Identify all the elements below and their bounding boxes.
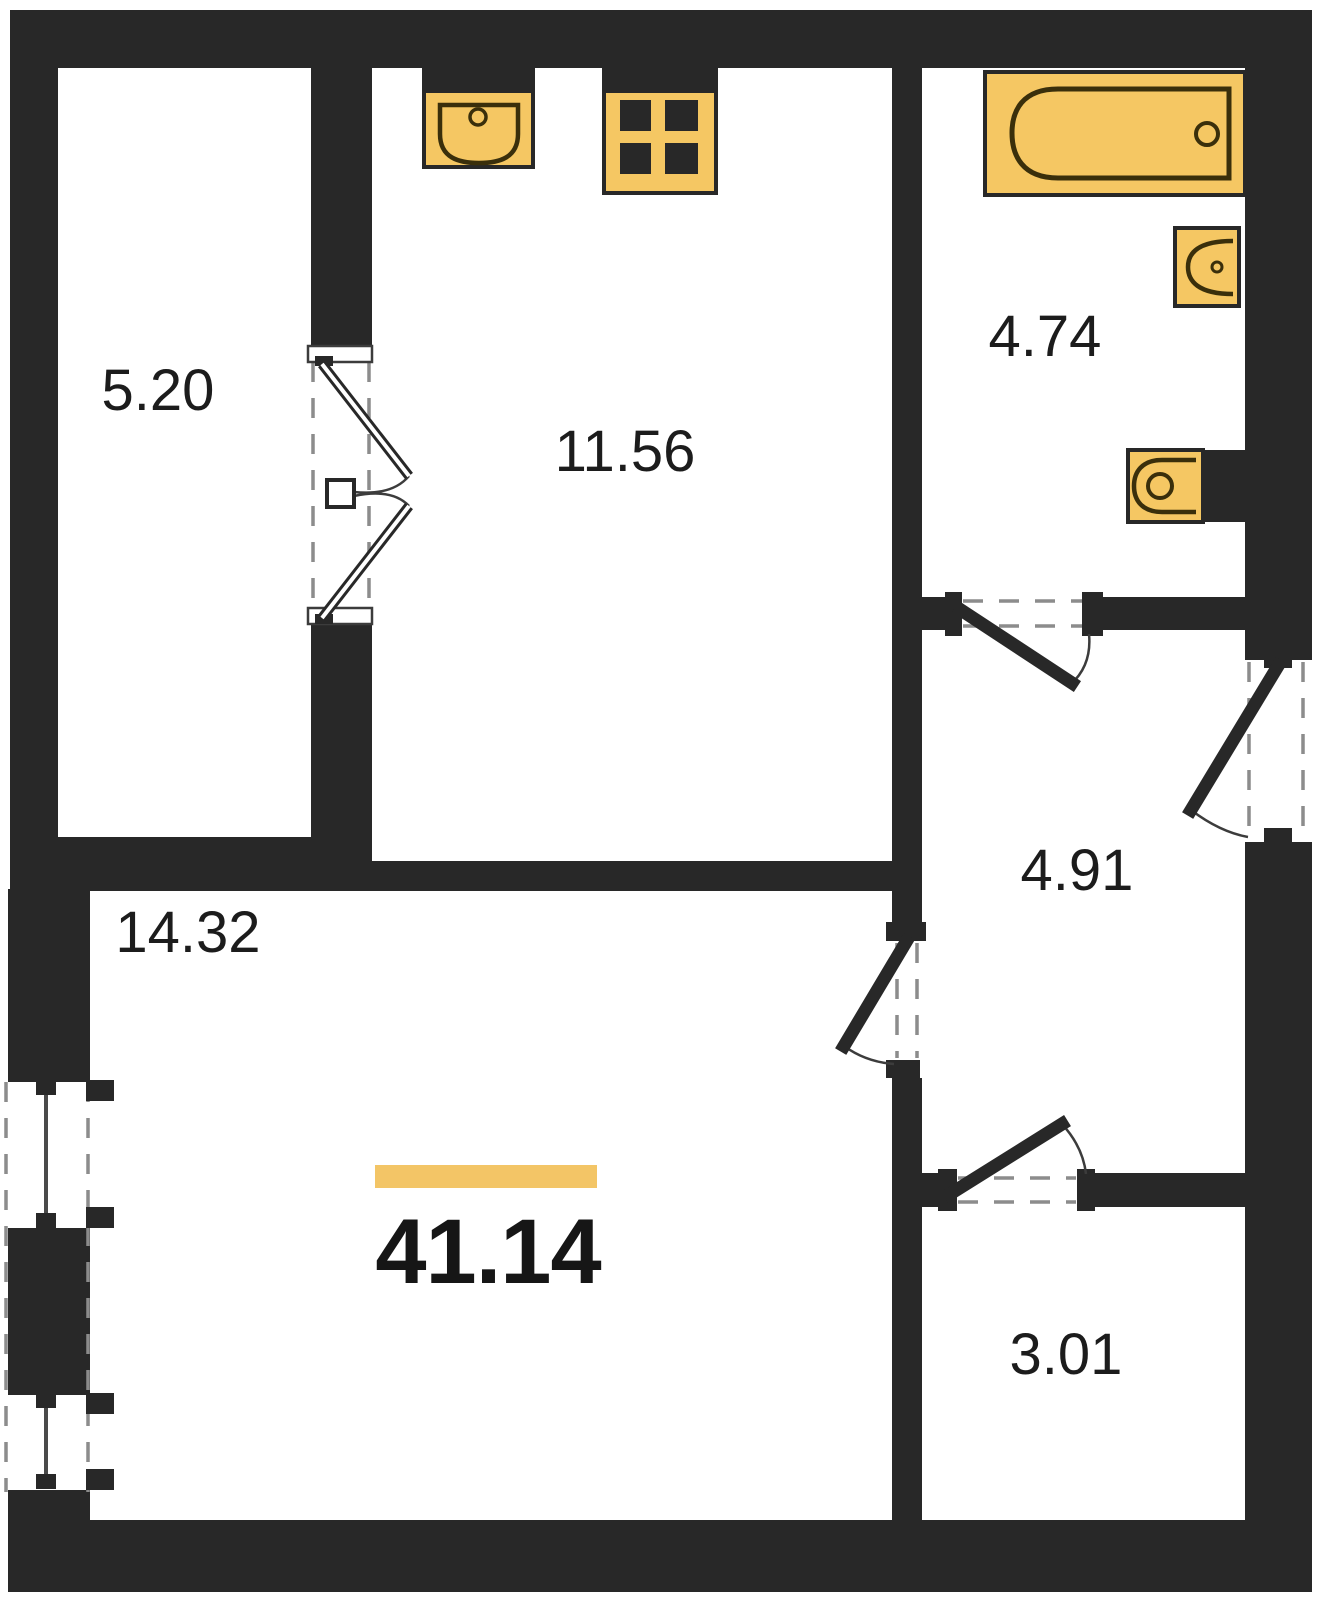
jamb xyxy=(1082,592,1103,636)
stove-burner xyxy=(620,100,651,131)
wall-bay-upper-block xyxy=(8,889,90,1082)
bathtub-icon xyxy=(985,72,1245,195)
wall-storage-top-right xyxy=(1095,1173,1245,1207)
wall-top xyxy=(10,10,1312,68)
toilet-cistern xyxy=(1201,450,1245,522)
door-leaf xyxy=(961,610,1072,683)
wall-bottom xyxy=(10,1520,1312,1592)
wall-left-upper xyxy=(10,10,58,840)
washbasin-icon xyxy=(1175,228,1239,306)
window-cap xyxy=(36,1213,56,1228)
storage-door xyxy=(950,1124,1086,1194)
door-leaf-fill xyxy=(322,364,409,476)
balcony-double-door xyxy=(308,346,409,624)
entry-door xyxy=(1191,666,1278,837)
wall-bay-mid-pillar xyxy=(8,1228,90,1395)
stove-icon xyxy=(604,68,716,193)
window-stub xyxy=(86,1207,114,1228)
window-stub xyxy=(86,1393,114,1414)
door-swing-arc xyxy=(1191,810,1248,837)
door-swing-arc xyxy=(354,476,409,493)
door-leaf-fill xyxy=(322,506,409,618)
window-cap xyxy=(36,1474,56,1489)
door-knob xyxy=(327,480,354,507)
room-label-bathroom: 4.74 xyxy=(989,308,1102,366)
total-area-bar xyxy=(375,1165,597,1188)
wall-center-divider-lower xyxy=(892,1078,922,1520)
jamb xyxy=(1264,828,1292,846)
jamb xyxy=(1077,1169,1095,1211)
room-label-living-room: 14.32 xyxy=(115,904,260,962)
total-area-label: 41.14 xyxy=(375,1206,600,1298)
wall-bath-bottom-left xyxy=(892,597,948,630)
window-stub xyxy=(86,1469,114,1490)
wall-right-upper xyxy=(1245,10,1312,660)
stove-burner xyxy=(665,100,698,131)
window-stub xyxy=(86,1080,114,1101)
living-room-door xyxy=(844,942,906,1064)
room-label-balcony: 5.20 xyxy=(102,362,215,420)
wall-right-lower xyxy=(1245,842,1312,1592)
wall-bath-bottom-right xyxy=(1103,597,1245,630)
kitchen-sink-icon xyxy=(424,68,533,167)
stove-burner xyxy=(620,143,651,174)
stove-wall-strip xyxy=(604,68,716,93)
bathroom-door xyxy=(961,610,1089,684)
wall-balcony-divider-upper xyxy=(311,68,372,349)
wall-storage-top-left xyxy=(892,1173,938,1207)
door-swing-arc xyxy=(354,494,409,506)
room-label-hallway: 4.91 xyxy=(1021,842,1134,900)
door-leaf xyxy=(1191,666,1278,810)
wall-center-divider-upper xyxy=(892,68,922,940)
room-label-kitchen: 11.56 xyxy=(555,423,696,481)
toilet-icon xyxy=(1128,450,1245,522)
stove-burner xyxy=(665,143,698,174)
door-swing-arc xyxy=(1062,1124,1086,1174)
sink-wall-strip xyxy=(424,68,533,93)
window-cap xyxy=(36,1393,56,1408)
window-cap xyxy=(36,1080,56,1095)
door-leaf xyxy=(950,1124,1062,1194)
floor-plan-page: 5.20 11.56 4.74 4.91 14.32 3.01 41.14 xyxy=(0,0,1320,1600)
room-label-storage: 3.01 xyxy=(1010,1326,1123,1384)
wall-living-top xyxy=(10,861,922,891)
